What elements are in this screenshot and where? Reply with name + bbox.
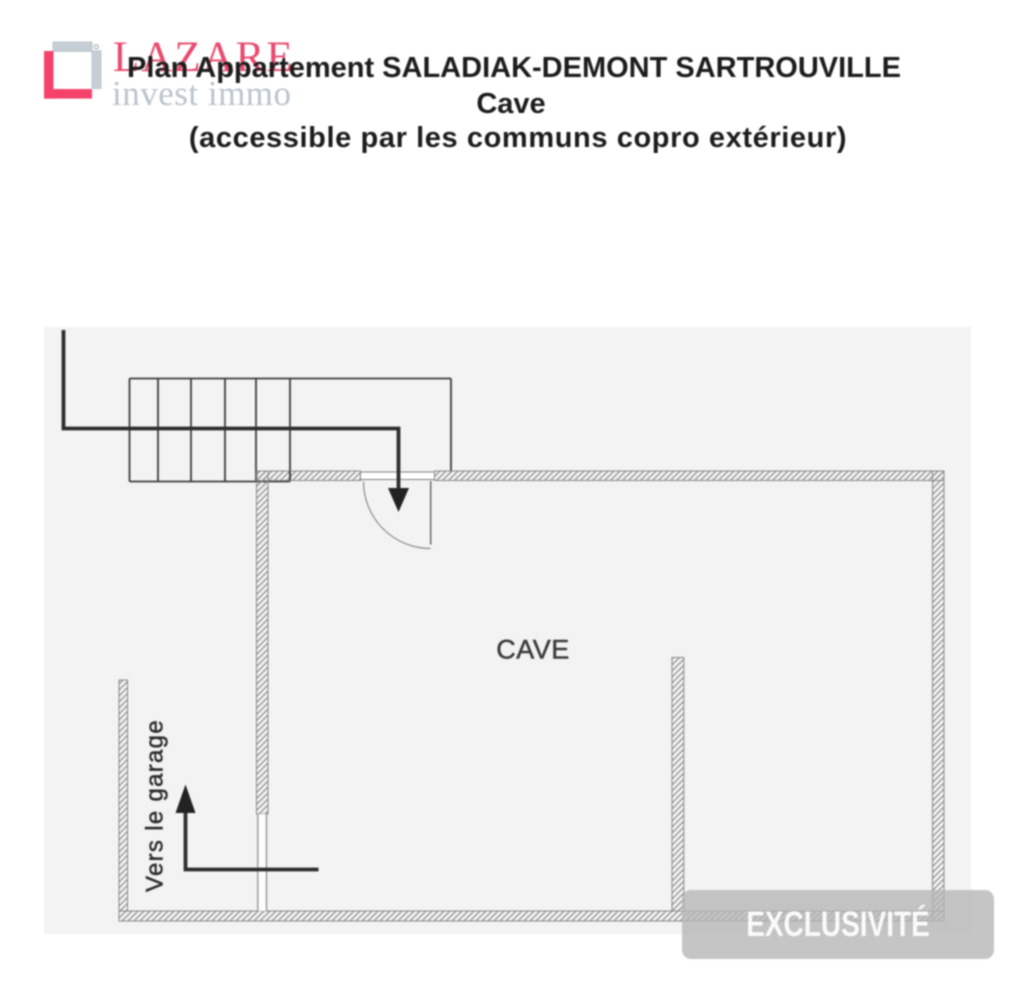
svg-text:Vers le garage: Vers le garage [142,719,169,892]
svg-text:CAVE: CAVE [496,635,570,665]
